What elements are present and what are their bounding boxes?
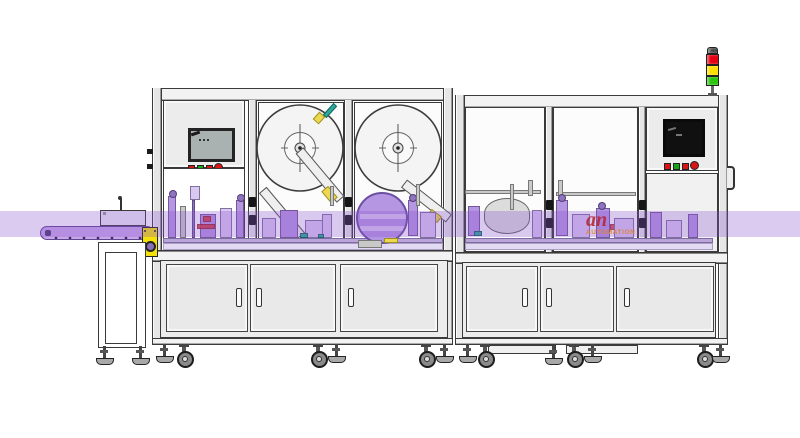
hmi-button-red	[664, 163, 671, 170]
label-reel-2	[350, 100, 446, 196]
caster-wheel	[696, 344, 712, 368]
door-handle	[624, 288, 630, 307]
door-handle	[236, 288, 242, 307]
conveyor-antenna	[120, 199, 122, 210]
label-reel-1	[252, 100, 348, 196]
bowl-feeder-base	[384, 238, 398, 243]
door-handle	[546, 288, 552, 307]
leveling-foot	[156, 344, 172, 366]
cabinet-side-handle	[727, 166, 735, 190]
tower-light-green	[706, 76, 719, 86]
tower-light-yellow	[706, 65, 719, 76]
caster-wheel	[176, 344, 192, 368]
caster-wheel	[418, 344, 434, 368]
leveling-foot	[436, 344, 452, 366]
leveling-foot	[96, 346, 112, 368]
door-hinge	[249, 197, 256, 207]
screen-glyph	[676, 134, 682, 136]
guide-rail	[556, 192, 636, 196]
left-machine-base-rail	[152, 338, 453, 345]
tower-light-red	[706, 54, 719, 65]
mount-nub	[147, 164, 153, 169]
door-hinge	[546, 200, 553, 210]
conveyor-stand-inner	[105, 252, 137, 344]
caster-wheel	[566, 344, 582, 368]
caster-wheel	[477, 344, 493, 368]
mount-nub	[147, 149, 153, 154]
door-hinge	[639, 200, 646, 210]
machine-part	[237, 194, 245, 202]
screen-glyph	[199, 139, 201, 141]
leveling-foot	[132, 346, 148, 368]
door-handle	[522, 288, 528, 307]
door-handle	[348, 288, 354, 307]
door-handle	[256, 288, 262, 307]
cabinet-door	[250, 264, 336, 332]
machine-part	[330, 186, 334, 206]
machine-part	[558, 194, 566, 202]
screen-glyph	[203, 139, 205, 141]
machine-line-drawing: an AUTOMATION	[0, 0, 800, 438]
machine-part	[416, 184, 420, 206]
conveyor-antenna-tip	[118, 196, 122, 200]
caster-wheel	[310, 344, 326, 368]
motor-pulley	[145, 241, 156, 252]
watermark-caption: AUTOMATION	[586, 230, 635, 237]
machine-part	[190, 186, 200, 200]
hmi-button-green	[673, 163, 680, 170]
watermark-brand: an	[586, 210, 607, 230]
cabinet-door	[340, 264, 438, 332]
machine-part	[358, 240, 382, 248]
leveling-foot	[328, 344, 344, 366]
tower-flange	[708, 93, 717, 96]
leveling-foot	[545, 346, 561, 368]
product-rail-base	[163, 243, 443, 250]
machine-part	[528, 180, 533, 196]
leveling-foot	[584, 344, 600, 366]
hmi-estop-button	[690, 161, 699, 170]
cabinet-door	[616, 266, 714, 332]
door-hinge	[345, 197, 352, 207]
machine-part	[510, 184, 514, 210]
tower-cap	[707, 47, 718, 54]
product-rail-base	[465, 243, 713, 250]
watermark: an AUTOMATION	[586, 211, 670, 239]
screen-glyph	[207, 139, 209, 141]
right-hmi-screen	[663, 119, 705, 157]
hmi-button-red	[682, 163, 689, 170]
leveling-foot	[459, 344, 475, 366]
product-flow-highlight-band	[0, 211, 800, 237]
machine-part	[169, 190, 177, 198]
leveling-foot	[712, 344, 728, 366]
